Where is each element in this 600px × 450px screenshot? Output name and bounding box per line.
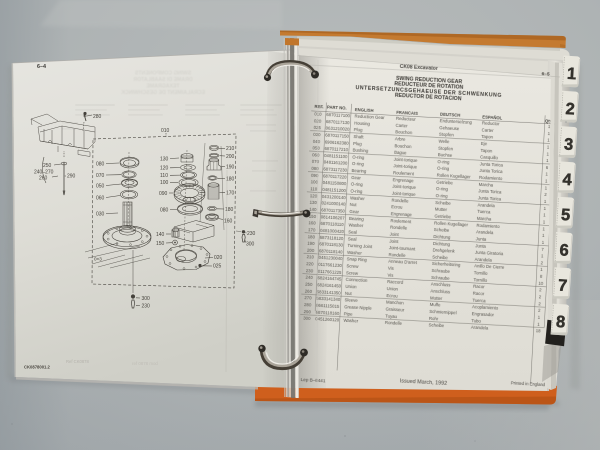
svg-text:290: 290 xyxy=(304,309,312,314)
svg-text:090: 090 xyxy=(159,191,168,197)
svg-text:Gear: Gear xyxy=(351,175,361,181)
svg-text:080: 080 xyxy=(160,208,169,214)
svg-text:220: 220 xyxy=(306,261,314,266)
svg-text:080: 080 xyxy=(311,166,319,171)
svg-text:Schraube: Schraube xyxy=(431,275,450,281)
svg-text:260: 260 xyxy=(305,288,313,293)
svg-text:010: 010 xyxy=(161,128,170,134)
svg-text:O-ring: O-ring xyxy=(437,159,450,165)
svg-text:Gear: Gear xyxy=(349,209,359,215)
svg-text:10: 10 xyxy=(538,281,544,286)
svg-text:240: 240 xyxy=(305,275,313,280)
svg-text:Screw: Screw xyxy=(346,270,359,276)
svg-text:3: 3 xyxy=(564,135,574,154)
svg-text:Plug: Plug xyxy=(354,127,363,132)
svg-text:Vis: Vis xyxy=(388,266,394,271)
svg-text:Muffe: Muffe xyxy=(430,302,442,308)
svg-text:Schraube: Schraube xyxy=(431,268,450,274)
svg-text:Arbre: Arbre xyxy=(395,136,406,142)
svg-text:040: 040 xyxy=(313,139,321,144)
svg-text:DRAME DI SAABLATOR: DRAME DI SAABLATOR xyxy=(133,77,192,83)
svg-text:Washer: Washer xyxy=(349,222,364,228)
svg-text:Seal: Seal xyxy=(348,229,357,234)
svg-text:O-ring: O-ring xyxy=(437,166,450,172)
svg-text:Bearing: Bearing xyxy=(351,168,367,174)
svg-text:290: 290 xyxy=(67,174,76,180)
svg-text:Marcha: Marcha xyxy=(479,182,494,188)
svg-text:Ecrou: Ecrou xyxy=(391,204,403,210)
svg-text:Eje: Eje xyxy=(481,141,488,146)
svg-text:Ref CK0878: Ref CK0878 xyxy=(66,359,89,364)
svg-text:200: 200 xyxy=(226,154,235,160)
svg-text:2: 2 xyxy=(565,100,575,119)
svg-text:120: 120 xyxy=(160,166,169,172)
svg-text:Pipe: Pipe xyxy=(344,311,353,316)
svg-text:CK0878001.2: CK0878001.2 xyxy=(24,365,51,370)
svg-text:Bague: Bague xyxy=(394,150,407,156)
svg-text:Rondelle: Rondelle xyxy=(390,225,408,231)
svg-text:190: 190 xyxy=(307,241,315,246)
svg-text:010: 010 xyxy=(314,111,322,116)
svg-text:Reductor: Reductor xyxy=(482,120,500,126)
svg-text:160: 160 xyxy=(224,219,233,225)
svg-text:230: 230 xyxy=(142,304,151,310)
svg-text:300: 300 xyxy=(303,316,311,321)
svg-text:Screw: Screw xyxy=(346,263,359,269)
svg-text:210: 210 xyxy=(307,254,315,259)
svg-text:060: 060 xyxy=(312,152,320,157)
svg-text:Scheibe: Scheibe xyxy=(434,227,450,233)
svg-text:Nut: Nut xyxy=(345,291,353,296)
svg-text:Getriebe: Getriebe xyxy=(436,179,453,185)
svg-text:ECRALAIMENT DE GESCHWINCK: ECRALAIMENT DE GESCHWINCK xyxy=(121,90,205,96)
svg-text:Bushing: Bushing xyxy=(353,148,369,154)
svg-text:Marcha: Marcha xyxy=(477,216,492,222)
svg-text:025: 025 xyxy=(213,264,222,270)
svg-text:Union: Union xyxy=(387,286,399,292)
svg-text:Racor: Racor xyxy=(473,284,485,290)
svg-text:Sleeve: Sleeve xyxy=(344,297,358,303)
svg-text:REF.: REF. xyxy=(314,104,323,109)
svg-text:120: 120 xyxy=(310,193,318,198)
svg-text:Buchse: Buchse xyxy=(438,152,453,158)
svg-text:6–4: 6–4 xyxy=(37,64,46,70)
svg-text:PART NO.: PART NO. xyxy=(327,105,347,111)
svg-text:O-ring: O-ring xyxy=(352,161,365,167)
svg-text:140: 140 xyxy=(309,207,317,212)
svg-text:Welle: Welle xyxy=(438,139,450,145)
svg-text:Anschluss: Anschluss xyxy=(431,282,451,288)
svg-text:6: 6 xyxy=(559,241,569,260)
svg-text:150: 150 xyxy=(156,241,165,247)
svg-text:Bouchon: Bouchon xyxy=(395,129,413,135)
svg-text:Scheibe: Scheibe xyxy=(432,254,448,260)
svg-text:ref 0878 mod: ref 0878 mod xyxy=(132,361,158,366)
svg-text:Tapon: Tapon xyxy=(481,134,494,140)
svg-text:Union: Union xyxy=(345,284,357,290)
svg-text:O-ring: O-ring xyxy=(436,186,449,192)
svg-text:Stopfen: Stopfen xyxy=(438,145,454,151)
svg-text:Arandela: Arandela xyxy=(476,229,494,235)
svg-text:110: 110 xyxy=(310,186,318,191)
svg-text:Tornillo: Tornillo xyxy=(474,270,488,276)
svg-text:070: 070 xyxy=(96,173,105,179)
svg-text:Washer: Washer xyxy=(350,195,365,201)
svg-text:Anschluss: Anschluss xyxy=(430,288,450,294)
svg-text:Bearing: Bearing xyxy=(349,216,365,222)
svg-text:Scheibe: Scheibe xyxy=(435,200,451,206)
svg-text:030: 030 xyxy=(313,132,321,137)
svg-text:Junta: Junta xyxy=(476,236,487,242)
svg-text:Carter: Carter xyxy=(395,123,408,129)
svg-text:Racor: Racor xyxy=(473,291,485,297)
svg-text:5: 5 xyxy=(561,206,571,225)
svg-text:Tuyau: Tuyau xyxy=(385,313,398,319)
svg-text:Tuerca: Tuerca xyxy=(472,297,486,303)
svg-text:Bouchon: Bouchon xyxy=(394,143,412,149)
svg-text:Dichtung: Dichtung xyxy=(433,241,451,247)
svg-text:Casquillo: Casquillo xyxy=(480,154,499,160)
svg-text:O-ring: O-ring xyxy=(351,182,364,188)
svg-text:Mutter: Mutter xyxy=(430,295,443,301)
svg-text:Tubo: Tubo xyxy=(471,318,481,324)
svg-text:Scheibe: Scheibe xyxy=(429,322,445,328)
svg-text:18: 18 xyxy=(536,328,542,333)
svg-text:ENGLISH: ENGLISH xyxy=(355,107,374,113)
svg-text:Carter: Carter xyxy=(482,127,495,133)
svg-text:0×3: 0×3 xyxy=(94,257,102,262)
svg-text:Arandela: Arandela xyxy=(478,202,496,208)
svg-text:Arandela: Arandela xyxy=(475,257,493,263)
svg-text:Plug: Plug xyxy=(353,141,362,146)
svg-text:Rondelle: Rondelle xyxy=(391,197,409,203)
svg-text:200: 200 xyxy=(307,248,315,253)
svg-text:130: 130 xyxy=(160,157,169,163)
svg-text:190: 190 xyxy=(226,165,235,171)
svg-text:060: 060 xyxy=(96,196,105,202)
svg-text:Stopfen: Stopfen xyxy=(439,132,455,138)
svg-text:210: 210 xyxy=(226,146,235,152)
svg-text:1: 1 xyxy=(567,65,577,84)
svg-text:Joint: Joint xyxy=(390,232,400,238)
svg-text:050: 050 xyxy=(312,145,320,150)
svg-text:140: 140 xyxy=(156,232,165,238)
svg-text:Joint: Joint xyxy=(389,238,399,244)
svg-text:Tornillo: Tornillo xyxy=(473,277,487,283)
svg-text:180: 180 xyxy=(308,234,316,239)
svg-text:110: 110 xyxy=(160,173,168,179)
svg-text:Raccord: Raccord xyxy=(387,279,404,285)
svg-text:Rondelle: Rondelle xyxy=(388,252,406,258)
svg-text:8: 8 xyxy=(556,313,566,332)
svg-text:020: 020 xyxy=(214,255,223,261)
svg-text:Rondelle: Rondelle xyxy=(385,320,403,326)
svg-text:Housing: Housing xyxy=(354,120,371,126)
svg-text:270: 270 xyxy=(304,295,312,300)
svg-text:O-ring: O-ring xyxy=(436,193,449,199)
svg-text:Getriebe: Getriebe xyxy=(434,214,451,220)
svg-text:7: 7 xyxy=(558,277,568,296)
svg-text:Washer: Washer xyxy=(347,250,362,256)
svg-text:O-ring: O-ring xyxy=(352,154,365,160)
svg-text:SWING COMPONENTS: SWING COMPONENTS xyxy=(134,71,191,77)
svg-text:130: 130 xyxy=(309,200,317,205)
svg-text:Seal: Seal xyxy=(348,236,357,241)
svg-text:230: 230 xyxy=(247,231,256,237)
svg-text:TEXAGRAME: TEXAGRAME xyxy=(146,84,180,90)
svg-text:180: 180 xyxy=(225,207,234,213)
svg-text:O-ring: O-ring xyxy=(350,188,363,194)
svg-text:Washer: Washer xyxy=(343,318,358,324)
svg-text:Tapon: Tapon xyxy=(480,148,493,154)
svg-text:300: 300 xyxy=(246,242,255,248)
svg-text:050: 050 xyxy=(96,184,105,190)
svg-text:280: 280 xyxy=(304,302,312,307)
svg-text:250: 250 xyxy=(305,282,313,287)
svg-text:Rohr: Rohr xyxy=(429,316,439,322)
svg-text:080: 080 xyxy=(96,162,105,168)
svg-text:170: 170 xyxy=(308,227,316,232)
svg-text:100: 100 xyxy=(160,180,169,186)
svg-text:Manchon: Manchon xyxy=(386,300,405,306)
svg-text:Vis: Vis xyxy=(387,272,393,277)
svg-text:Tuerca: Tuerca xyxy=(477,209,491,215)
svg-text:230: 230 xyxy=(306,268,314,273)
svg-text:160: 160 xyxy=(308,220,316,225)
svg-text:300: 300 xyxy=(142,296,151,302)
svg-text:030: 030 xyxy=(96,212,105,218)
svg-text:Dichtung: Dichtung xyxy=(433,234,451,240)
svg-text:Ecrou: Ecrou xyxy=(386,293,398,299)
svg-text:070: 070 xyxy=(312,159,320,164)
svg-text:Graisseur: Graisseur xyxy=(386,307,405,313)
svg-text:Junta: Junta xyxy=(475,243,486,249)
svg-text:250: 250 xyxy=(43,163,52,169)
svg-text:Nut: Nut xyxy=(350,202,358,207)
svg-text:Mutter: Mutter xyxy=(435,207,448,213)
svg-text:Shaft: Shaft xyxy=(353,134,364,140)
svg-text:280: 280 xyxy=(93,114,102,120)
svg-text:Arandela: Arandela xyxy=(471,325,489,331)
